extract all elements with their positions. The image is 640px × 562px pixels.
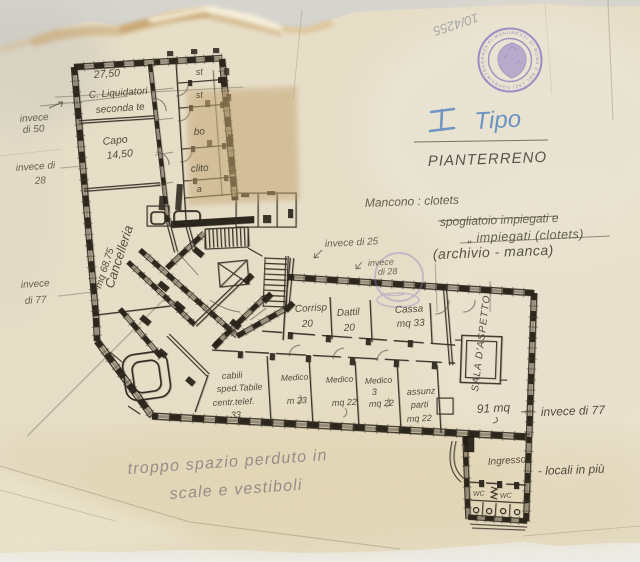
svg-text:WC: WC	[500, 493, 513, 500]
svg-text:mq 22: mq 22	[407, 413, 433, 424]
svg-text:cabili: cabili	[222, 370, 244, 381]
svg-text:di 77: di 77	[24, 294, 47, 307]
svg-text:a: a	[196, 184, 202, 194]
svg-text:mq 22: mq 22	[332, 397, 358, 408]
svg-text:Medico: Medico	[326, 374, 354, 385]
svg-text:Medico: Medico	[365, 375, 393, 386]
svg-text:WC: WC	[473, 491, 486, 498]
svg-text:28: 28	[33, 175, 46, 187]
svg-text:invece di 77: invece di 77	[541, 403, 607, 419]
svg-text:20: 20	[301, 318, 314, 330]
svg-text:assunz: assunz	[407, 385, 436, 397]
svg-text:clito: clito	[190, 163, 209, 175]
svg-text:33: 33	[231, 409, 242, 420]
svg-text:di 28: di 28	[378, 266, 398, 277]
svg-text:Cassa: Cassa	[395, 304, 424, 316]
svg-text:3: 3	[372, 387, 378, 397]
svg-text:- locali in più: - locali in più	[538, 462, 605, 478]
svg-text:Dattil: Dattil	[337, 307, 361, 319]
svg-text:Corrisp: Corrisp	[295, 302, 328, 315]
svg-text:st: st	[195, 66, 203, 76]
svg-text:mq 33: mq 33	[397, 318, 426, 330]
svg-text:di 50: di 50	[22, 123, 45, 136]
svg-text:invece: invece	[20, 278, 50, 291]
svg-text:bo: bo	[193, 126, 205, 138]
svg-text:Medico: Medico	[281, 372, 309, 383]
svg-text:invece: invece	[19, 112, 49, 125]
svg-text:Tipo: Tipo	[474, 106, 522, 135]
svg-text:mq 22: mq 22	[369, 398, 395, 409]
svg-text:m 23: m 23	[287, 395, 308, 406]
svg-text:91 mq: 91 mq	[476, 400, 510, 416]
svg-text:20: 20	[343, 322, 356, 334]
svg-text:27,50: 27,50	[92, 67, 120, 81]
svg-text:parti: parti	[410, 399, 430, 410]
svg-text:st: st	[195, 89, 203, 99]
